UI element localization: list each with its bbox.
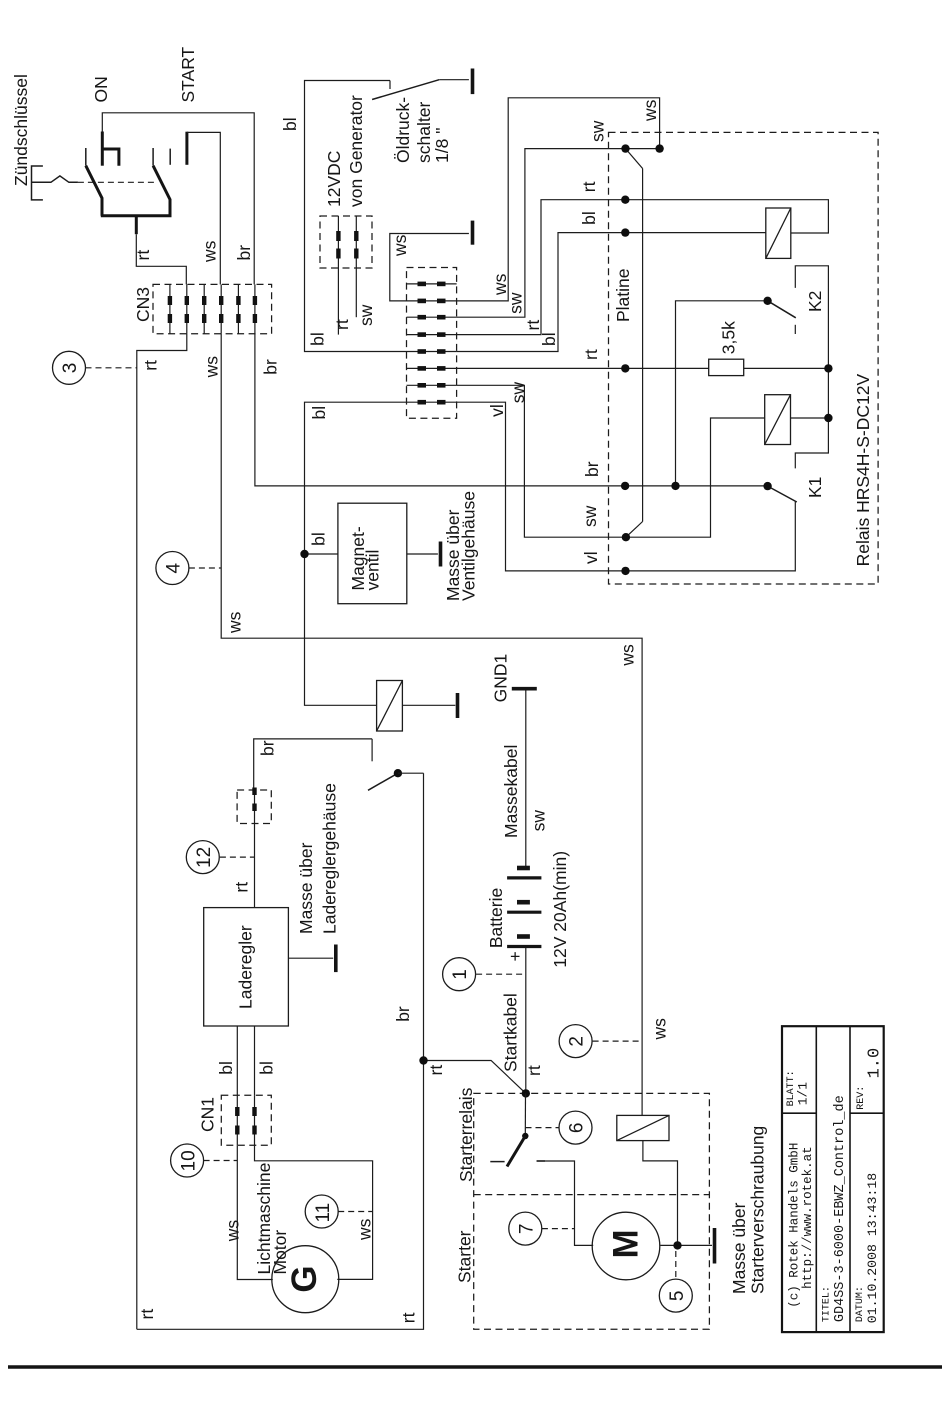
svg-text:6: 6: [567, 1123, 588, 1134]
svg-text:rt: rt: [524, 1065, 544, 1076]
svg-text:rt: rt: [579, 181, 599, 192]
svg-text:Relais HRS4H-S-DC12V: Relais HRS4H-S-DC12V: [853, 374, 873, 567]
svg-text:Laderegler: Laderegler: [236, 925, 256, 1009]
svg-text:sw: sw: [529, 810, 549, 832]
svg-text:1/1: 1/1: [796, 1082, 811, 1106]
svg-text:Masse über: Masse über: [296, 842, 316, 934]
svg-text:Ventilgehäuse: Ventilgehäuse: [459, 491, 479, 601]
svg-text:sw: sw: [580, 505, 600, 527]
svg-text:rt: rt: [231, 882, 251, 893]
svg-text:sw: sw: [356, 304, 376, 326]
svg-text:Platine: Platine: [613, 268, 633, 322]
svg-text:rt: rt: [332, 319, 352, 330]
svg-text:12: 12: [194, 847, 215, 868]
svg-text:br: br: [393, 1006, 413, 1022]
svg-text:Masse über: Masse über: [729, 1202, 749, 1294]
svg-text:1.0: 1.0: [865, 1048, 884, 1079]
svg-text:bl: bl: [257, 1061, 277, 1075]
svg-text:2: 2: [567, 1036, 588, 1047]
svg-text:Zündschlüssel: Zündschlüssel: [11, 74, 31, 186]
svg-text:ws: ws: [355, 1218, 375, 1241]
svg-text:Batterie: Batterie: [486, 888, 506, 948]
svg-text:1/8 ": 1/8 ": [432, 128, 452, 163]
svg-text:GD4SS-3-6000-EBWZ_Control_de: GD4SS-3-6000-EBWZ_Control_de: [833, 1095, 848, 1322]
svg-text:vl: vl: [581, 551, 601, 564]
svg-text:12V 20Ah(min): 12V 20Ah(min): [550, 851, 570, 968]
svg-text:br: br: [234, 245, 254, 261]
svg-text:ws: ws: [649, 1018, 669, 1041]
svg-text:01.10.2008 13:43:18: 01.10.2008 13:43:18: [865, 1173, 880, 1323]
svg-text:10: 10: [179, 1150, 200, 1171]
svg-text:DATUM:: DATUM:: [855, 1286, 866, 1322]
svg-text:Starterverschraubung: Starterverschraubung: [747, 1126, 767, 1294]
svg-text:br: br: [582, 461, 602, 477]
svg-text:sw: sw: [587, 120, 607, 142]
svg-text:TITEL:: TITEL:: [822, 1286, 833, 1322]
svg-text:CN3: CN3: [133, 287, 153, 322]
svg-text:bl: bl: [539, 332, 559, 346]
svg-text:Massekabel: Massekabel: [501, 745, 521, 838]
svg-text:ws: ws: [640, 99, 660, 122]
svg-text:GND1: GND1: [491, 654, 511, 703]
svg-text:1: 1: [450, 969, 471, 980]
svg-text:START: START: [178, 46, 198, 102]
svg-text:12VDC: 12VDC: [324, 151, 344, 207]
svg-text:ws: ws: [390, 234, 410, 257]
svg-text:Öldruck-: Öldruck-: [393, 97, 413, 163]
svg-text:bl: bl: [216, 1061, 236, 1075]
svg-text:rt: rt: [426, 1065, 446, 1076]
svg-text:(c) Rotek Handels GmbH: (c) Rotek Handels GmbH: [788, 1143, 802, 1308]
svg-text:ventil: ventil: [363, 550, 383, 591]
svg-text:ws: ws: [200, 240, 220, 263]
svg-text:von Generator: von Generator: [346, 95, 366, 207]
svg-text:+: +: [505, 951, 525, 961]
svg-text:bl: bl: [309, 532, 329, 546]
svg-text:Starterrelais: Starterrelais: [456, 1087, 476, 1182]
svg-text:7: 7: [517, 1224, 538, 1235]
svg-text:ws: ws: [618, 644, 638, 667]
svg-text:Startkabel: Startkabel: [501, 993, 521, 1072]
svg-text:4: 4: [164, 563, 185, 574]
svg-text:3: 3: [60, 363, 81, 374]
svg-text:Ladereglergehäuse: Ladereglergehäuse: [319, 783, 339, 934]
svg-text:http://www.rotek.at: http://www.rotek.at: [801, 1146, 815, 1289]
svg-text:5: 5: [667, 1291, 688, 1302]
svg-text:G: G: [285, 1265, 324, 1292]
svg-text:rt: rt: [141, 360, 161, 371]
svg-text:Starter: Starter: [454, 1230, 474, 1283]
svg-text:bl: bl: [309, 406, 329, 420]
svg-text:rt: rt: [137, 1309, 157, 1320]
svg-text:ws: ws: [225, 611, 245, 634]
svg-text:11: 11: [313, 1203, 334, 1223]
svg-text:REV:: REV:: [856, 1086, 867, 1110]
svg-text:bl: bl: [579, 211, 599, 225]
svg-text:M: M: [607, 1229, 646, 1258]
svg-text:CN1: CN1: [197, 1097, 217, 1132]
svg-text:ws: ws: [202, 356, 222, 379]
svg-text:K2: K2: [805, 291, 825, 312]
svg-text:vl: vl: [487, 404, 507, 417]
svg-text:rt: rt: [523, 320, 543, 331]
svg-text:rt: rt: [399, 1312, 419, 1323]
svg-text:sw: sw: [506, 292, 526, 314]
svg-text:bl: bl: [308, 332, 328, 346]
svg-text:K1: K1: [805, 477, 825, 498]
svg-text:sw: sw: [508, 381, 528, 403]
svg-text:rt: rt: [133, 250, 153, 261]
svg-text:rt: rt: [581, 349, 601, 360]
svg-text:ON: ON: [91, 76, 111, 102]
svg-text:3,5k: 3,5k: [719, 321, 739, 354]
svg-text:br: br: [257, 740, 277, 756]
svg-text:br: br: [260, 359, 280, 375]
svg-text:schalter: schalter: [414, 102, 434, 163]
svg-text:bl: bl: [280, 117, 300, 131]
svg-text:ws: ws: [222, 1220, 242, 1243]
